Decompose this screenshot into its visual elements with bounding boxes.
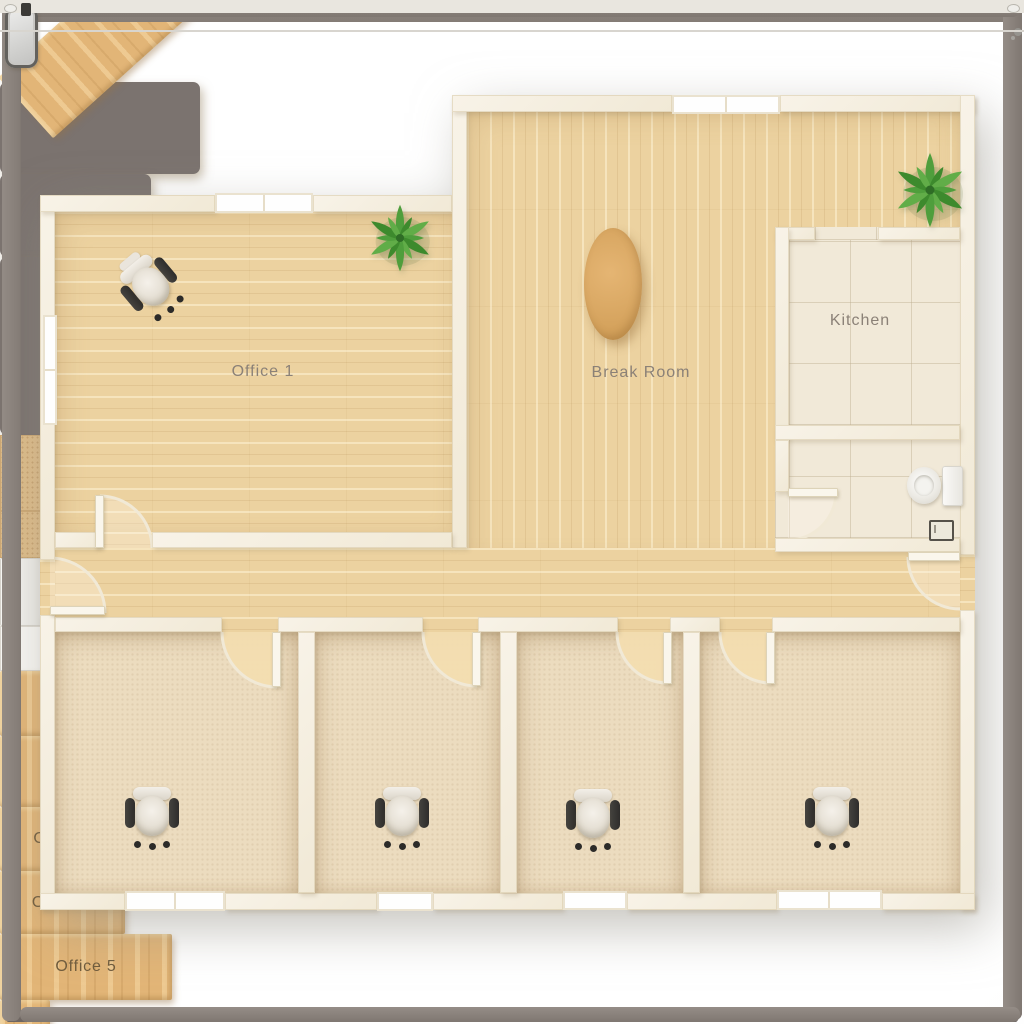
wall-kitchen-bath-divider [775, 425, 960, 440]
door-rear [908, 552, 960, 561]
chair-seat [576, 798, 610, 838]
coffee-table [584, 228, 642, 340]
wall-bottom-1 [40, 893, 125, 910]
chair-wheel [604, 843, 611, 850]
wall-bottom-2 [225, 893, 377, 910]
wall-bottom-3 [433, 893, 563, 910]
window-mullion [45, 369, 55, 371]
wall-office2-3-divider [298, 632, 315, 893]
chair-wheel [134, 841, 141, 848]
floor-hallway [55, 548, 960, 617]
office-chair-office4 [565, 789, 621, 851]
wall-hall-5 [772, 617, 960, 632]
vanity-sink-bowl [1007, 4, 1020, 13]
waste-bin [929, 520, 954, 541]
wall-office1-bottom-left [55, 532, 100, 548]
floor-office5-doorway [720, 617, 772, 632]
window-office2-bottom [125, 891, 225, 911]
floor-office4-doorway [618, 617, 670, 632]
chair-seat [135, 796, 169, 836]
chair-wheel [399, 843, 406, 850]
office-chair-office2 [124, 787, 180, 849]
wall-bathroom-left [775, 440, 789, 492]
door-entry [50, 606, 105, 615]
chair-armrest [375, 798, 385, 828]
door-office5 [766, 632, 775, 684]
window-office3-bottom [377, 892, 433, 911]
toilet-tank [942, 466, 963, 506]
wall-kitchen-left [775, 227, 789, 440]
wall-right-lower [960, 610, 975, 910]
toilet-bowl-inner [914, 475, 934, 496]
chair-armrest [125, 798, 135, 828]
window-mullion [828, 892, 830, 908]
door-bathroom [788, 488, 838, 497]
floor-rear-threshold [960, 555, 975, 610]
refrigerator-door-seam [0, 30, 1024, 32]
sofa-armrest [20, 1007, 1020, 1022]
chair-wheel [843, 841, 850, 848]
chair-wheel [149, 843, 156, 850]
chair-wheel [163, 841, 170, 848]
plant-icon [890, 150, 970, 230]
chair-armrest [566, 800, 576, 830]
window-break-room-top [672, 95, 780, 114]
office-floor-plan: Office 2 Office 3 Office 4 Office 5 [0, 0, 1024, 1024]
floor-bathroom-doorway [775, 492, 789, 538]
window-office4-bottom [563, 891, 627, 910]
wall-hall-1 [55, 617, 222, 632]
office-chair-office3 [374, 787, 430, 849]
wall-office4-5-divider [683, 632, 700, 893]
wall-office1-bottom-right [152, 532, 452, 548]
chair-wheel [829, 843, 836, 850]
wall-office3-4-divider [500, 632, 517, 893]
floor-office2 [55, 632, 298, 893]
wall-top-left [452, 95, 672, 112]
chair-armrest [805, 798, 815, 828]
wall-office1-right [452, 95, 467, 548]
chair-seat [385, 796, 419, 836]
chair-wheel [814, 841, 821, 848]
office-chair-office5 [804, 787, 860, 849]
chair-armrest [610, 800, 620, 830]
chair-wheel [384, 841, 391, 848]
door-office1 [95, 495, 104, 548]
window-mullion [263, 195, 265, 211]
floor-office2-doorway [222, 617, 278, 632]
wall-office1-top-left [40, 195, 215, 212]
floor-kitchen [789, 240, 960, 425]
window-mullion [725, 97, 727, 112]
room-label-kitchen: Kitchen [800, 312, 920, 330]
chair-wheel [575, 843, 582, 850]
wall-hall-2 [278, 617, 423, 632]
floor-office5 [700, 632, 960, 893]
toilet [905, 464, 963, 508]
door-office2 [272, 632, 281, 687]
chair-armrest [419, 798, 429, 828]
vanity-backsplash [0, 0, 1024, 13]
floor-office4 [517, 632, 683, 893]
chair-wheel [590, 845, 597, 852]
floor-office3-doorway [423, 617, 478, 632]
chair-armrest [849, 798, 859, 828]
wall-top-right [780, 95, 975, 112]
chair-wheel [413, 841, 420, 848]
vanity-faucet [21, 3, 31, 16]
wall-hall-4 [670, 617, 720, 632]
vanity-sink-bowl [4, 4, 17, 13]
chair-armrest [169, 798, 179, 828]
floor-kitchen-opening [815, 227, 878, 240]
door-office3 [472, 632, 481, 686]
room-label-break-room: Break Room [561, 364, 721, 382]
waste-bin-inner [934, 525, 936, 533]
window-office5-bottom [777, 890, 882, 910]
window-mullion [174, 893, 176, 909]
window-office1-left [43, 315, 57, 425]
window-office1-top [215, 193, 313, 213]
room-label-office1: Office 1 [183, 363, 343, 381]
wall-left-lower [40, 615, 55, 910]
wall-hall-3 [478, 617, 618, 632]
wall-bottom-4 [627, 893, 777, 910]
floor-office1-doorway [100, 532, 152, 548]
door-office4 [663, 632, 672, 684]
sofa-backrest [2, 3, 20, 1021]
wall-bottom-5 [882, 893, 975, 910]
chair-seat [815, 796, 849, 836]
plant-icon [364, 202, 436, 274]
